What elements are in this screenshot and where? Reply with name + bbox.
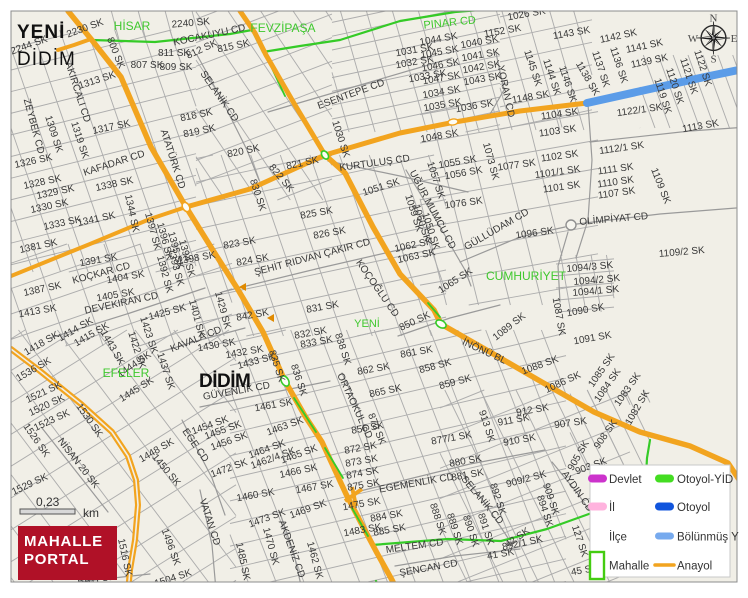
svg-text:S: S bbox=[710, 54, 716, 66]
svg-text:Devlet: Devlet bbox=[609, 474, 642, 486]
svg-text:YENİ: YENİ bbox=[17, 22, 65, 43]
svg-text:FEVZİPAŞA: FEVZİPAŞA bbox=[250, 21, 315, 35]
svg-text:Otoyol: Otoyol bbox=[677, 502, 710, 514]
svg-text:İlçe: İlçe bbox=[609, 531, 627, 544]
svg-text:İl: İl bbox=[609, 501, 615, 514]
svg-text:W: W bbox=[688, 33, 699, 45]
svg-text:Anayol: Anayol bbox=[677, 561, 712, 573]
svg-text:0,23: 0,23 bbox=[36, 495, 60, 509]
svg-text:CUMHURİYET: CUMHURİYET bbox=[486, 269, 567, 283]
svg-text:DİDİM: DİDİM bbox=[17, 49, 76, 70]
svg-text:EFELER: EFELER bbox=[103, 366, 150, 380]
svg-text:Mahalle: Mahalle bbox=[609, 561, 649, 573]
svg-text:Otoyol-YİD: Otoyol-YİD bbox=[677, 473, 733, 486]
svg-text:DİDİM: DİDİM bbox=[199, 371, 250, 392]
svg-text:N: N bbox=[710, 13, 718, 25]
svg-text:km: km bbox=[83, 506, 99, 520]
svg-text:HİSAR: HİSAR bbox=[114, 19, 151, 33]
svg-text:E: E bbox=[731, 33, 738, 45]
svg-text:YENİ: YENİ bbox=[354, 317, 380, 330]
svg-text:809 SK: 809 SK bbox=[160, 62, 193, 73]
svg-text:MAHALLE: MAHALLE bbox=[24, 533, 103, 550]
svg-text:PORTAL: PORTAL bbox=[24, 551, 89, 568]
svg-text:Bölünmüş Y: Bölünmüş Y bbox=[677, 532, 739, 544]
